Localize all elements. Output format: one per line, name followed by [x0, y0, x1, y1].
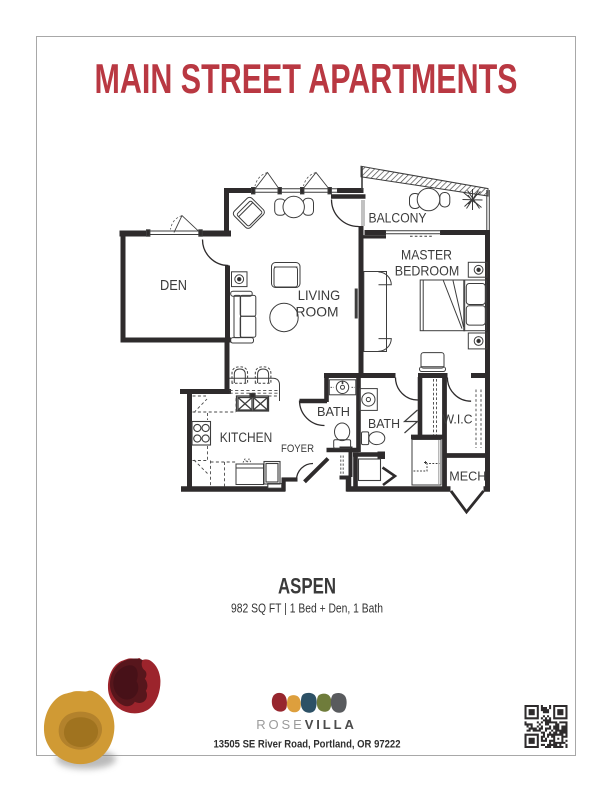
svg-text:FOYER: FOYER [281, 443, 314, 455]
svg-text:ROSEVILLA: ROSEVILLA [256, 717, 357, 732]
svg-text:13505 SE River Road, Portland,: 13505 SE River Road, Portland, OR 97222 [214, 739, 401, 751]
svg-text:982 SQ FT | 1 Bed + Den, 1 Bat: 982 SQ FT | 1 Bed + Den, 1 Bath [231, 601, 383, 615]
svg-text:MAIN STREET APARTMENTS: MAIN STREET APARTMENTS [95, 55, 518, 102]
svg-text:KITCHEN: KITCHEN [220, 430, 273, 445]
svg-text:BATH: BATH [317, 404, 350, 419]
svg-text:MECH: MECH [449, 469, 486, 484]
svg-text:BALCONY: BALCONY [369, 211, 427, 226]
svg-text:LIVING: LIVING [298, 287, 341, 303]
svg-text:ASPEN: ASPEN [278, 574, 336, 599]
svg-text:MASTER: MASTER [401, 247, 452, 263]
svg-text:BEDROOM: BEDROOM [395, 262, 460, 278]
svg-text:W.I.C: W.I.C [443, 412, 473, 427]
svg-text:DEN: DEN [160, 277, 187, 294]
svg-text:ROOM: ROOM [296, 304, 339, 320]
svg-text:BATH: BATH [368, 416, 400, 431]
